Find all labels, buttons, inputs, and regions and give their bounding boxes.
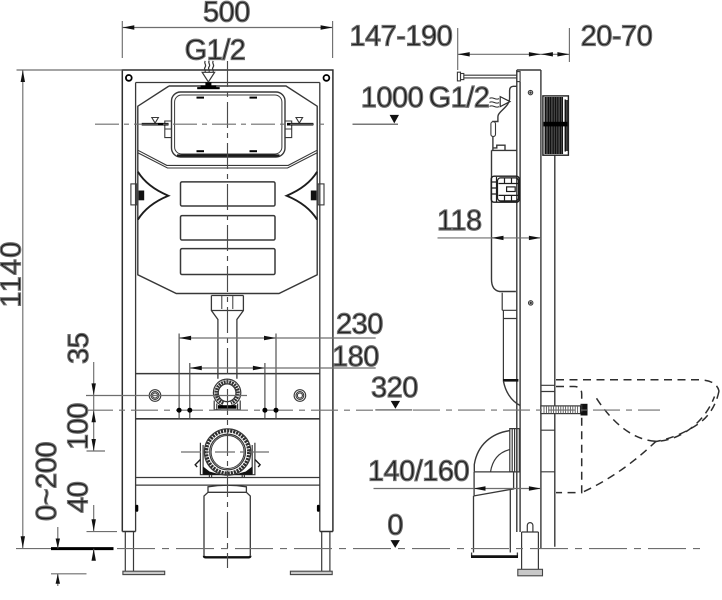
svg-text:1000: 1000 — [361, 82, 424, 114]
svg-text:180: 180 — [332, 341, 379, 373]
svg-text:0~200: 0~200 — [31, 442, 63, 521]
svg-text:140/160: 140/160 — [368, 456, 469, 488]
svg-text:1140: 1140 — [0, 240, 28, 307]
svg-text:G1/2: G1/2 — [429, 82, 490, 114]
svg-text:230: 230 — [336, 309, 383, 341]
svg-text:147-190: 147-190 — [349, 21, 452, 53]
svg-text:100: 100 — [63, 403, 95, 450]
svg-text:500: 500 — [203, 0, 250, 29]
svg-text:40: 40 — [63, 482, 95, 513]
svg-text:118: 118 — [437, 205, 482, 237]
svg-text:320: 320 — [371, 372, 418, 404]
svg-text:0: 0 — [387, 510, 403, 542]
svg-text:35: 35 — [63, 333, 95, 364]
svg-text:G1/2: G1/2 — [185, 35, 246, 67]
svg-text:20-70: 20-70 — [581, 21, 653, 53]
